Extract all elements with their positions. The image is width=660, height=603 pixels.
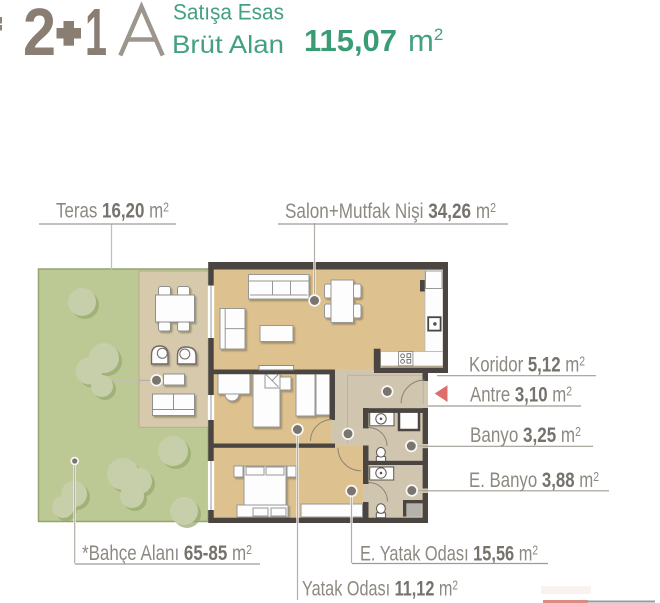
svg-text:Salon+Mutfak Nişi 34,26 m2: Salon+Mutfak Nişi 34,26 m2: [285, 200, 496, 223]
svg-text:*Bahçe Alanı 65-85 m2: *Bahçe Alanı 65-85 m2: [82, 542, 252, 565]
svg-text:2: 2: [23, 0, 56, 70]
svg-text:Koridor 5,12 m2: Koridor 5,12 m2: [469, 354, 585, 377]
svg-text:Antre 3,10 m2: Antre 3,10 m2: [470, 384, 572, 407]
svg-text:Brüt Alan: Brüt Alan: [172, 31, 284, 59]
svg-text:Satışa Esas: Satışa Esas: [173, 0, 284, 25]
svg-text:Yatak Odası 11,12 m2: Yatak Odası 11,12 m2: [302, 578, 458, 601]
svg-text:E. Yatak Odası 15,56 m2: E. Yatak Odası 15,56 m2: [360, 543, 538, 566]
svg-text:115,07: 115,07: [304, 23, 397, 58]
svg-text:E. Banyo 3,88 m2: E. Banyo 3,88 m2: [469, 469, 599, 492]
svg-text:m2: m2: [408, 23, 443, 58]
svg-text:1: 1: [85, 0, 107, 70]
svg-text:Banyo 3,25 m2: Banyo 3,25 m2: [470, 424, 581, 447]
svg-text:Teras 16,20 m2: Teras 16,20 m2: [56, 200, 169, 223]
